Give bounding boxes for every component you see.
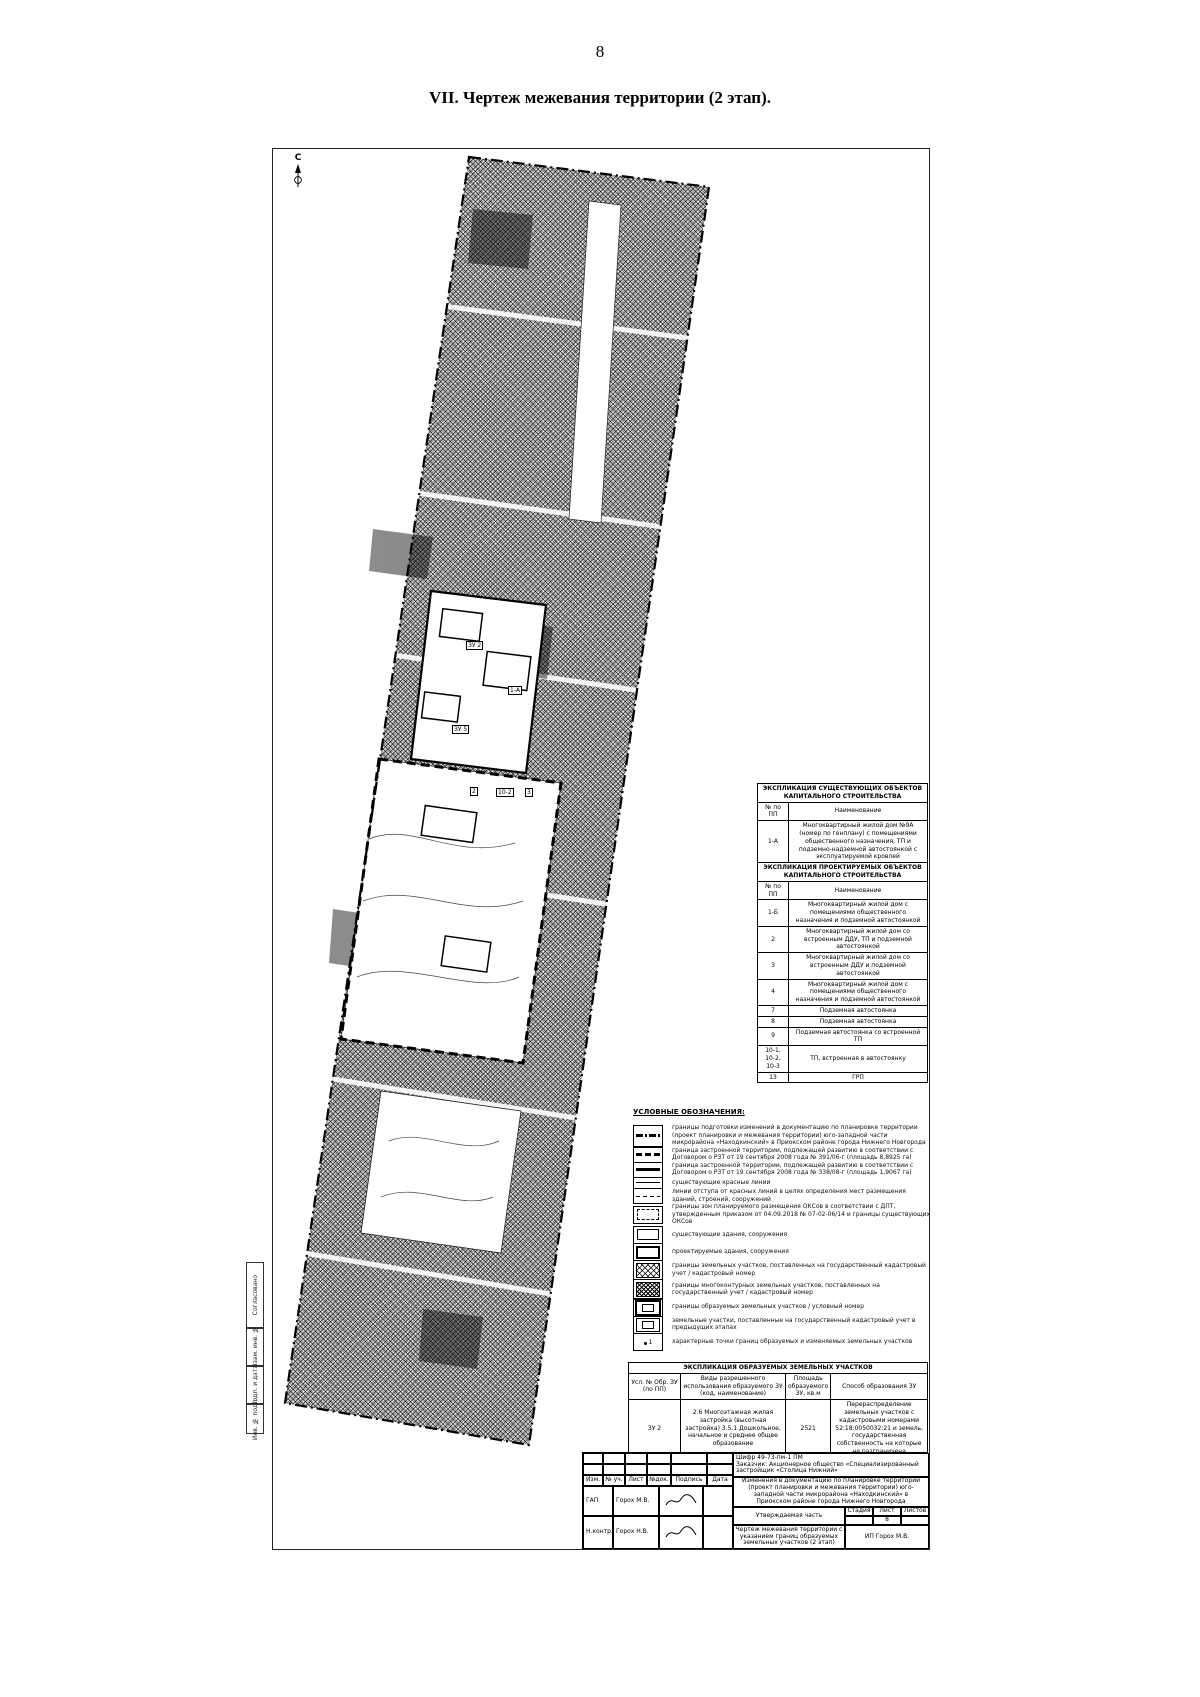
table-cell: 1-Б (758, 900, 789, 926)
thin-line-icon (633, 1177, 663, 1189)
column-header: Усл. № Обр. ЗУ (по ПП) (629, 1373, 681, 1399)
stamp-side-cell: Согласовано (246, 1262, 264, 1328)
stamp-cell (671, 1464, 707, 1475)
stamp-cell (603, 1464, 625, 1475)
table-row: № по ПП Наименование (758, 881, 928, 900)
map-label: 1-А (508, 686, 522, 695)
thin-dashed-line-icon (633, 1188, 663, 1204)
table-row: Усл. № Обр. ЗУ (по ПП) Виды разрешенного… (629, 1373, 928, 1399)
legend-label: граница застроенной территории, подлежащ… (663, 1162, 931, 1177)
stamp-description: Изменения в документацию по планировке т… (733, 1477, 929, 1507)
explication-tables: ЭКСПЛИКАЦИЯ СУЩЕСТВУЮЩИХ ОБЪЕКТОВ КАПИТА… (757, 783, 928, 1083)
side-label: Взам. инв. № (252, 1326, 259, 1368)
table-row: № по ПП Наименование (758, 802, 928, 821)
table-row: 1-БМногоквартирный жилой дом с помещения… (758, 900, 928, 926)
dashed-rect-icon (633, 1206, 663, 1224)
stamp-side-cell: Инв. № подл. (246, 1404, 264, 1434)
stamp-cell (583, 1464, 603, 1475)
map-label: ЗУ 5 (452, 725, 469, 734)
legend-label: границы зон планируемого размещения ОКСо… (663, 1203, 931, 1226)
legend-item: границы образуемых земельных участков / … (633, 1299, 931, 1316)
north-label: С (288, 153, 308, 163)
legend-item: проектируемые здания, сооружения (633, 1243, 931, 1260)
document-page: 8 VII. Чертеж межевания территории (2 эт… (0, 0, 1200, 1697)
table-cell: 2.6 Многоэтажная жилая застройка (высотн… (681, 1400, 786, 1458)
map-label: 10-2 (496, 788, 514, 797)
table-title: ЭКСПЛИКАЦИЯ ПРОЕКТИРУЕМЫХ ОБЪЕКТОВ КАПИТ… (758, 863, 928, 882)
table-row: 9Подземная автостоянка со встроенной ТП (758, 1027, 928, 1046)
legend-label: существующие здания, сооружения (663, 1231, 787, 1239)
table-row: 13ГРП (758, 1072, 928, 1083)
page-number: 8 (0, 42, 1200, 62)
stamp-side-cell: Взам. инв. № (246, 1328, 264, 1366)
map-label: 3 (525, 788, 533, 797)
stamp-cell (625, 1464, 647, 1475)
signature-icon (664, 1525, 698, 1541)
signature-icon (664, 1493, 698, 1509)
signature-cell (659, 1516, 703, 1549)
sheets-value (901, 1516, 929, 1525)
stamp-col-header: Дата (707, 1475, 733, 1486)
map-label: ЗУ 2 (466, 641, 483, 650)
table-row: 1-А Многоквартирный жилой дом №9А (номер… (758, 821, 928, 863)
legend-label: границы земельных участков, поставленных… (663, 1262, 931, 1277)
table-cell: Многоквартирный жилой дом с помещениями … (789, 900, 928, 926)
table-cell: Многоквартирный жилой дом со встроенным … (789, 926, 928, 952)
dense-hatch-rect-icon (633, 1279, 663, 1299)
lower-white-zone (361, 1091, 521, 1253)
bold-dashed-line-icon (633, 1147, 663, 1163)
table-cell: 4 (758, 979, 789, 1005)
legend-label: границы образуемых земельных участков / … (663, 1303, 864, 1311)
table-cell: 2521 (786, 1400, 831, 1458)
bold-solid-line-icon (633, 1162, 663, 1178)
stamp-col-header: Лист (625, 1475, 647, 1486)
stamp-col-header: №док. (647, 1475, 671, 1486)
table-cell: Подземная автостоянка (789, 1016, 928, 1027)
legend-item: граница застроенной территории, подлежащ… (633, 1147, 931, 1162)
stamp-code-cell: Шифр 49-73-пм-1 ПМ Заказчик: Акционерное… (733, 1453, 929, 1477)
title-block: Изм. № уч. Лист №док. Подпись Дата ГАП Г… (582, 1452, 928, 1549)
stamp-cell (671, 1453, 707, 1464)
table-cell: Подземная автостоянка (789, 1005, 928, 1016)
column-header: Виды разрешенного использования образуем… (681, 1373, 786, 1399)
table-cell: ЗУ 2 (629, 1400, 681, 1458)
signer-role: Н.контр. (583, 1516, 613, 1549)
table-row: 2Многоквартирный жилой дом со встроенным… (758, 926, 928, 952)
stamp-cell (703, 1486, 733, 1516)
table-title: ЭКСПЛИКАЦИЯ СУЩЕСТВУЮЩИХ ОБЪЕКТОВ КАПИТА… (758, 784, 928, 803)
legend-label: границы многоконтурных земельных участко… (663, 1282, 931, 1297)
table-row: ЭКСПЛИКАЦИЯ ПРОЕКТИРУЕМЫХ ОБЪЕКТОВ КАПИТ… (758, 863, 928, 882)
stamp-cell (603, 1453, 625, 1464)
legend-label: линии отступа от красных линий в целях о… (663, 1188, 931, 1203)
stamp-col-header: Подпись (671, 1475, 707, 1486)
map-label: 2 (470, 787, 478, 796)
table-row: 7Подземная автостоянка (758, 1005, 928, 1016)
stamp-cell (647, 1464, 671, 1475)
stamp-cell (707, 1453, 733, 1464)
thin-rect-icon (633, 1226, 663, 1244)
boundary-point-icon: 1 (633, 1333, 663, 1351)
legend-label: границы подготовки изменений в документа… (663, 1124, 931, 1147)
table-row: ЭКСПЛИКАЦИЯ СУЩЕСТВУЮЩИХ ОБЪЕКТОВ КАПИТА… (758, 784, 928, 803)
table-cell: Подземная автостоянка со встроенной ТП (789, 1027, 928, 1046)
table-cell: Многоквартирный жилой дом со встроенным … (789, 953, 928, 979)
legend-item: существующие здания, сооружения (633, 1226, 931, 1243)
stamp-org: ИП Горох М.В. (845, 1525, 929, 1549)
table-cell: Многоквартирный жилой дом с помещениями … (789, 979, 928, 1005)
signer-role: ГАП (583, 1486, 613, 1516)
legend-item: существующие красные линии (633, 1177, 931, 1188)
column-header: Наименование (789, 802, 928, 821)
compass-icon (291, 163, 305, 189)
stamp-cell (703, 1516, 733, 1549)
stamp-cell (647, 1453, 671, 1464)
stage-value (845, 1516, 873, 1525)
legend-title: УСЛОВНЫЕ ОБОЗНАЧЕНИЯ: (633, 1108, 931, 1116)
table-cell: ГРП (789, 1072, 928, 1083)
stamp-drawing-title: Чертеж межевания территории с указанием … (733, 1525, 845, 1549)
bold-rect-icon (633, 1243, 663, 1261)
table-row: 3Многоквартирный жилой дом со встроенным… (758, 953, 928, 979)
registered-parcel-icon (633, 1316, 663, 1334)
signature-cell (659, 1486, 703, 1516)
signer-name: Горох Н.В. (613, 1516, 659, 1549)
column-header: Площадь образуемого ЗУ, кв.м (786, 1373, 831, 1399)
table-cell: 9 (758, 1027, 789, 1046)
table-cell: 7 (758, 1005, 789, 1016)
legend-label: граница застроенной территории, подлежащ… (663, 1147, 931, 1162)
signer-name: Горох М.В. (613, 1486, 659, 1516)
point-number: 1 (649, 1339, 653, 1346)
table-cell: 1-А (758, 821, 789, 863)
column-header: № по ПП (758, 802, 789, 821)
table-cell: ТП, встроенная в автостоянку (789, 1046, 928, 1072)
legend-item: границы многоконтурных земельных участко… (633, 1279, 931, 1298)
legend: УСЛОВНЫЕ ОБОЗНАЧЕНИЯ: границы подготовки… (633, 1108, 931, 1350)
column-header: Способ образования ЗУ (831, 1373, 928, 1399)
table-row: 4Многоквартирный жилой дом с помещениями… (758, 979, 928, 1005)
hatch-rect-icon (633, 1260, 663, 1280)
table-cell: 8 (758, 1016, 789, 1027)
stamp-col-header: Изм. (583, 1475, 603, 1486)
legend-item: границы зон планируемого размещения ОКСо… (633, 1203, 931, 1226)
side-label: Инв. № подл. (252, 1398, 259, 1440)
stage-col-header: Стадия (845, 1507, 873, 1516)
sheet-value: 8 (873, 1516, 901, 1525)
stamp-cell (707, 1464, 733, 1475)
table-row: 8Подземная автостоянка (758, 1016, 928, 1027)
legend-label: характерные точки границ образуемых и из… (663, 1338, 912, 1346)
side-label: Согласовано (252, 1275, 259, 1315)
table-row: ЗУ 2 2.6 Многоэтажная жилая застройка (в… (629, 1400, 928, 1458)
table-title: ЭКСПЛИКАЦИЯ ОБРАЗУЕМЫХ ЗЕМЕЛЬНЫХ УЧАСТКО… (629, 1363, 928, 1374)
stamp-cell (625, 1453, 647, 1464)
table-cell: 10-1, 10-2, 10-3 (758, 1046, 789, 1072)
north-arrow: С (288, 153, 308, 192)
stamp-cell (583, 1453, 603, 1464)
table-cell: 13 (758, 1072, 789, 1083)
formed-parcel-icon (633, 1299, 663, 1317)
sheet-col-header: Лист (873, 1507, 901, 1516)
table-row: 10-1, 10-2, 10-3ТП, встроенная в автосто… (758, 1046, 928, 1072)
legend-item: линии отступа от красных линий в целях о… (633, 1188, 931, 1203)
sheets-col-header: Листов (901, 1507, 929, 1516)
page-title: VII. Чертеж межевания территории (2 этап… (0, 88, 1200, 108)
legend-item: 1 характерные точки границ образуемых и … (633, 1333, 931, 1350)
table-cell: 3 (758, 953, 789, 979)
table-cell: 2 (758, 926, 789, 952)
legend-label: проектируемые здания, сооружения (663, 1248, 789, 1256)
column-header: Наименование (789, 881, 928, 900)
legend-label: земельные участки, поставленные на госуд… (663, 1317, 931, 1332)
legend-item: граница застроенной территории, подлежащ… (633, 1162, 931, 1177)
table-row: ЭКСПЛИКАЦИЯ ОБРАЗУЕМЫХ ЗЕМЕЛЬНЫХ УЧАСТКО… (629, 1363, 928, 1374)
legend-item: земельные участки, поставленные на госуд… (633, 1316, 931, 1333)
stamp-section-title: Утверждаемая часть (733, 1507, 845, 1525)
table-cell: Перераспределение земельных участков с к… (831, 1400, 928, 1458)
column-header: № по ПП (758, 881, 789, 900)
dashdot-line-icon (633, 1125, 663, 1147)
legend-item: границы подготовки изменений в документа… (633, 1124, 931, 1147)
legend-label: существующие красные линии (663, 1179, 770, 1187)
table-cell: Многоквартирный жилой дом №9А (номер по … (789, 821, 928, 863)
legend-item: границы земельных участков, поставленных… (633, 1260, 931, 1279)
stamp-col-header: № уч. (603, 1475, 625, 1486)
stamp-customer: Заказчик: Акционерное общество «Специали… (736, 1462, 928, 1476)
